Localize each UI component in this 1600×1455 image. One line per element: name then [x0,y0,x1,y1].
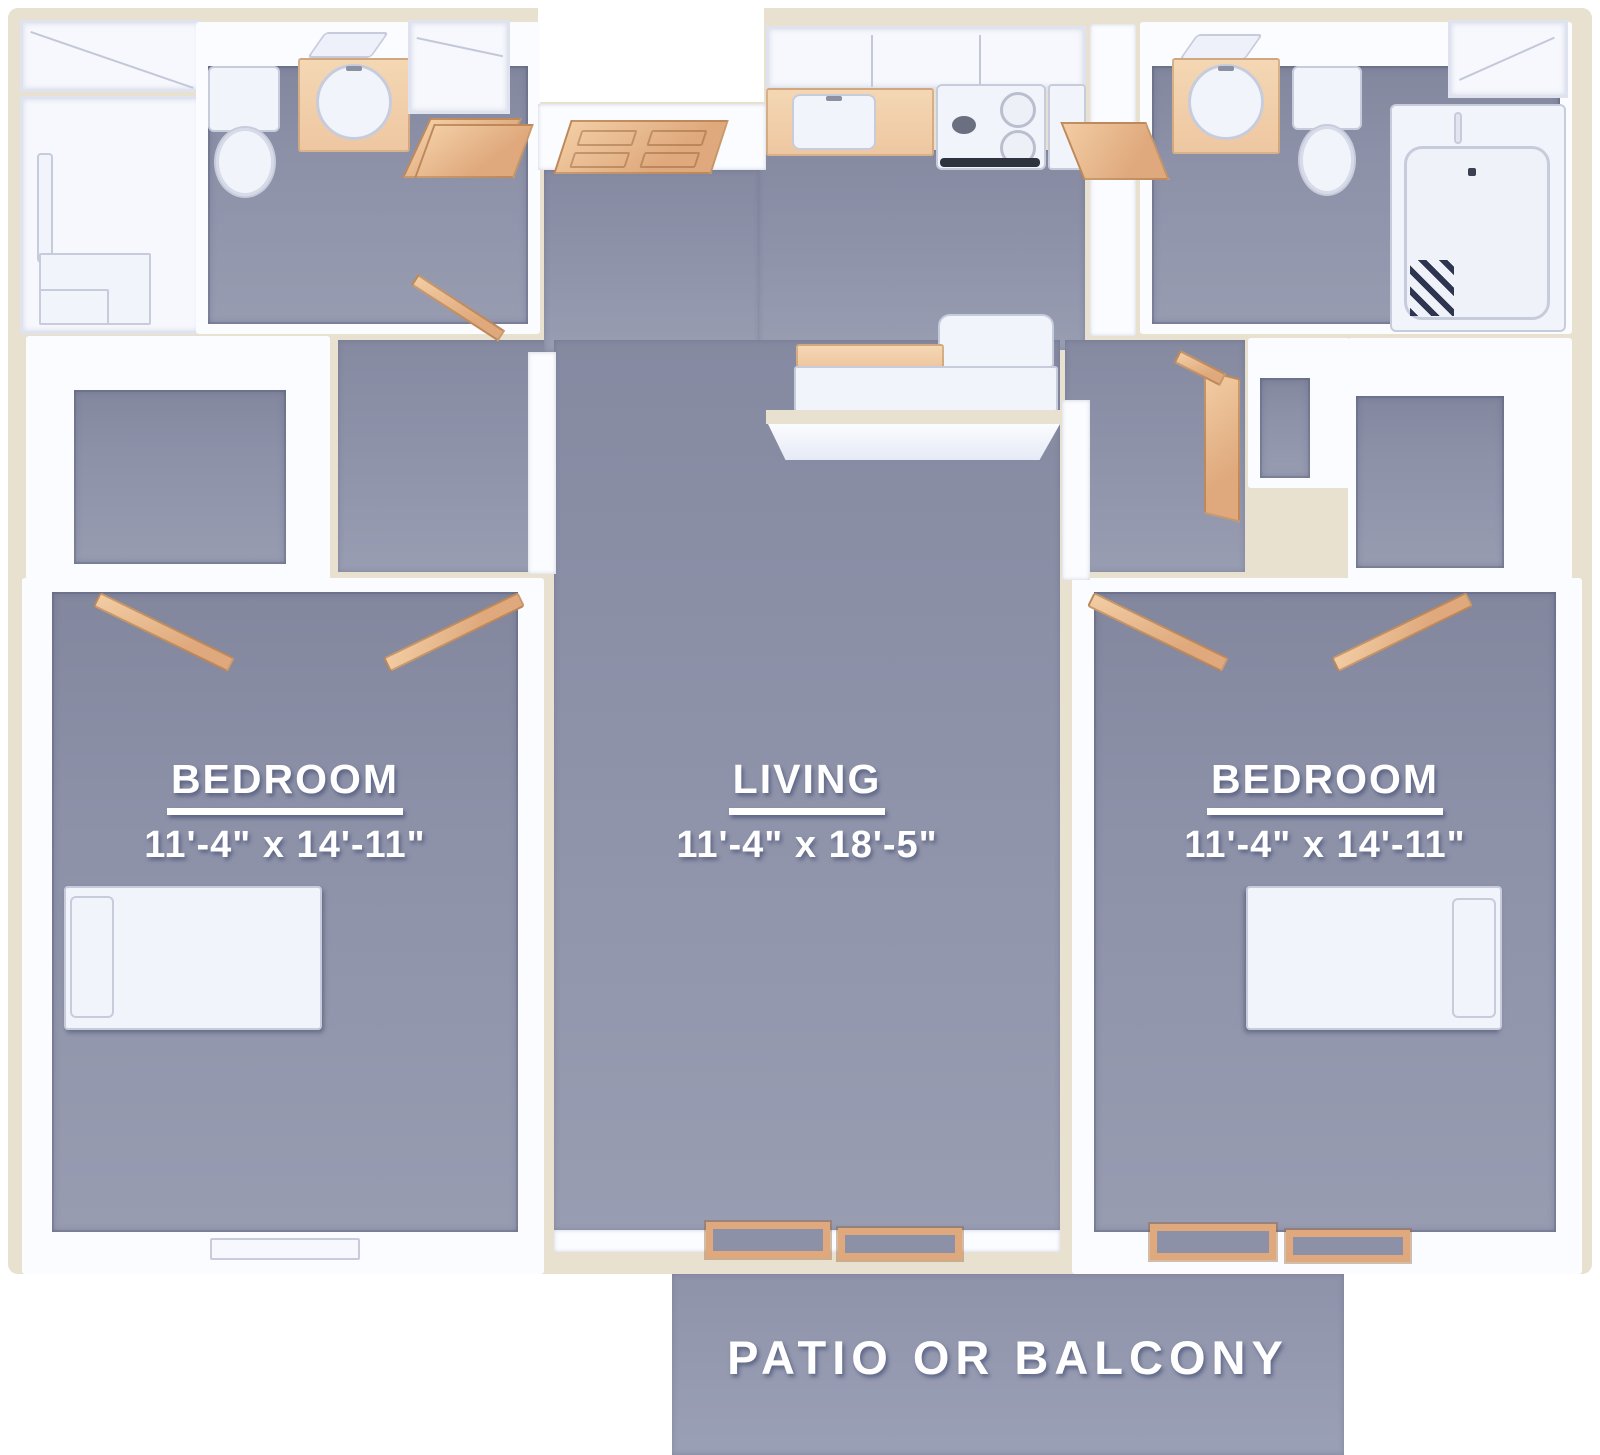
pillow [70,896,114,1018]
sliding-patio-door [706,1222,830,1258]
stove-knob [952,116,976,134]
upper-cabinets [766,26,1086,90]
entry-door [553,120,729,174]
sliding-patio-door [1150,1224,1276,1260]
faucet [826,96,842,101]
open-door [414,124,534,178]
open-door [1204,370,1240,523]
faucet [346,66,362,71]
door-panel [576,130,637,146]
door-swing-line [30,31,193,89]
shower-door [37,153,53,263]
shower-step [39,289,109,325]
room-label-patio: PATIO OR BALCONY [672,1330,1344,1385]
sofa-body [794,366,1058,412]
kitchen-sink [792,94,876,150]
floor-plan: BEDROOM 11'-4" x 14'-11" LIVING 11'-4" x… [0,0,1600,1455]
tub-drain [1468,168,1476,176]
sliding-patio-door [1286,1230,1410,1262]
faucet [1218,66,1234,71]
sliding-patio-door [838,1228,962,1260]
entry-alcove [538,0,764,102]
hall-left-floor [338,340,560,572]
bar-counter-edge [766,410,1062,424]
bar-seat-cushion [796,344,944,368]
closet-mid-right [1248,338,1350,488]
room-name: BEDROOM [167,756,403,815]
sofa-back-cushion [938,314,1054,368]
breakfast-bar [768,424,1060,460]
door-panel [569,152,630,168]
closet-top-left [20,20,202,92]
room-name: BEDROOM [1207,756,1443,815]
door-panel [639,152,700,168]
living-right-wall-stub [1062,400,1090,580]
toilet-tank [1292,66,1362,130]
door-swing-line [1459,37,1555,81]
room-label-living: LIVING 11'-4" x 18'-5" [554,756,1060,867]
stove [936,84,1046,170]
room-dimensions: 11'-4" x 14'-11" [1094,824,1556,867]
kitchen-right-wall [1090,24,1136,336]
toilet-bowl [1298,124,1356,196]
walk-in-closet-left [26,336,330,582]
vanity-sink [1188,64,1264,140]
toilet-bowl [214,126,276,198]
room-label-bedroom-left: BEDROOM 11'-4" x 14'-11" [52,756,518,867]
room-label-bedroom-right: BEDROOM 11'-4" x 14'-11" [1094,756,1556,867]
closet-far-right [1348,338,1572,584]
bath-mat [1410,260,1454,316]
window [210,1238,360,1260]
cabinet-seam [979,35,981,87]
living-left-wall-stub [528,352,556,574]
door-panel [646,130,707,146]
pillow [1452,898,1496,1018]
vanity-sink [316,64,392,140]
room-dimensions: 11'-4" x 18'-5" [554,824,1060,867]
room-dimensions: 11'-4" x 14'-11" [52,824,518,867]
shower-room [20,96,202,334]
closet-top-right [1448,20,1568,98]
bathtub [1390,104,1566,332]
room-name: LIVING [729,756,886,815]
entry-hall-floor [544,170,760,352]
bathroom-closet [408,20,510,114]
cabinet-seam [871,35,873,87]
oven-handle [940,158,1040,167]
tub-faucet [1454,112,1462,144]
shelf-line [417,37,503,57]
toilet-tank [208,66,280,132]
stove-burner [1000,92,1036,128]
